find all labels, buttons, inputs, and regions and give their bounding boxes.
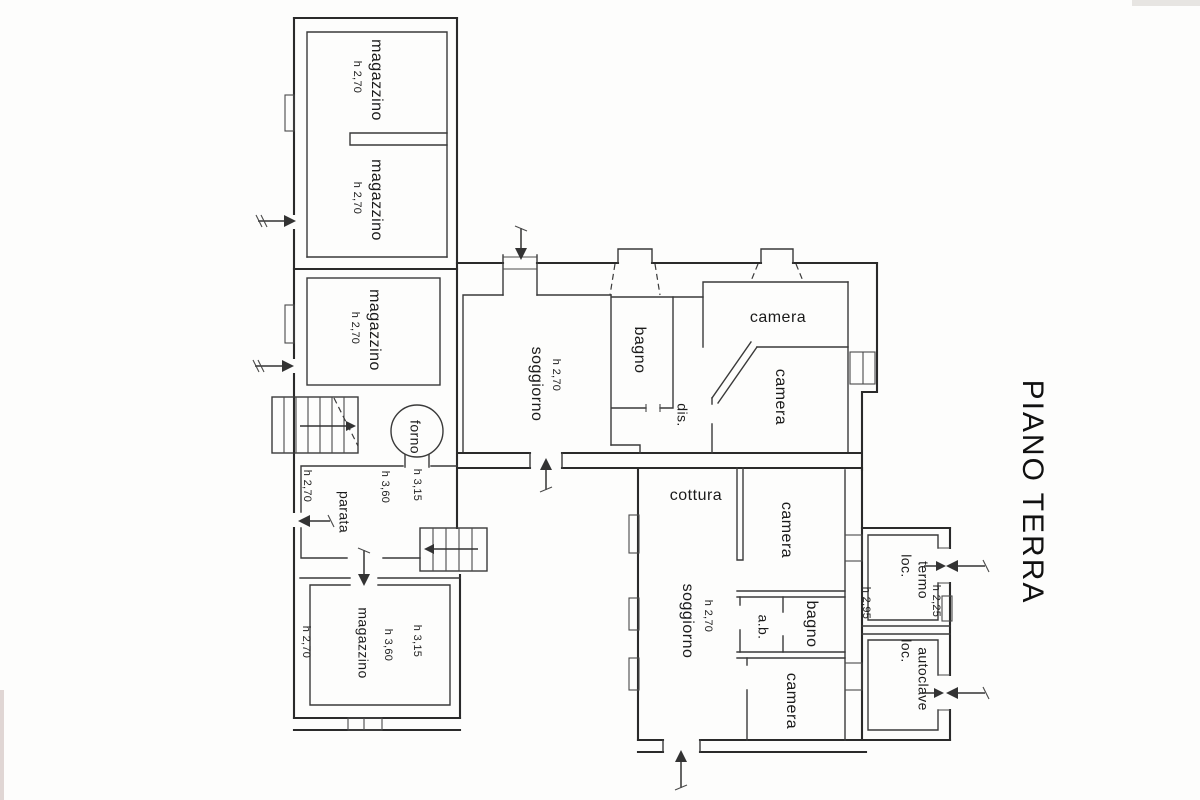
room-label-magazzino-1: magazzino (368, 39, 385, 121)
room-label-forno: forno (407, 420, 423, 454)
main-block-walls (457, 249, 877, 470)
room-label-dis: dis. (674, 403, 690, 426)
room-label-magazzino-4: magazzino (355, 607, 371, 678)
room-label-bagno-1: bagno (631, 327, 648, 374)
room-label-camera-3: camera (778, 502, 795, 558)
room-label-cottura: cottura (670, 487, 722, 504)
room-label-camera-4: camera (783, 673, 800, 729)
height-label-magazzino-4b: h 3,60 (382, 629, 394, 661)
room-label-loc-termo-2: termo (915, 561, 931, 599)
scan-artifact (0, 690, 4, 800)
height-label-magazzino-2: h 2,70 (351, 182, 363, 214)
room-label-camera-1: camera (750, 309, 806, 326)
entrance-arrow-magazzino4 (358, 548, 370, 586)
height-label-loc-termo-2: h 2,95 (860, 587, 872, 619)
entrance-arrow-main-top (515, 226, 527, 260)
entrance-arrow-parata (298, 515, 334, 527)
room-label-camera-2: camera (772, 369, 789, 425)
height-label-loc-termo: h 2,25 (930, 585, 942, 617)
entrance-arrow-lower-block (675, 750, 687, 790)
plan-title: PIANO TERRA (1016, 380, 1049, 605)
room-label-parata: parata (336, 491, 352, 533)
entrance-arrow-magazzino3 (253, 360, 294, 372)
staircase-external (272, 397, 358, 453)
staircase-internal (420, 528, 487, 571)
height-label-parata-3: h 3,15 (411, 469, 423, 501)
room-label-magazzino-3: magazzino (366, 289, 383, 371)
room-label-ab: a.b. (755, 615, 771, 640)
height-label-magazzino-3: h 2,70 (349, 312, 361, 344)
room-labels: magazzino h 2,70 magazzino h 2,70 magazz… (300, 39, 942, 729)
room-label-loc-autoclave-1: loc. (898, 639, 914, 662)
floor-plan-drawing: magazzino h 2,70 magazzino h 2,70 magazz… (0, 0, 1200, 800)
scan-artifact (1132, 0, 1200, 6)
room-label-loc-termo-1: loc. (898, 554, 914, 577)
entrance-arrow-magazzino2 (256, 215, 296, 227)
height-label-soggiorno-2: h 2,70 (702, 600, 714, 632)
height-label-parata-1: h 2,70 (301, 470, 313, 502)
left-wing-walls (285, 18, 460, 730)
entrance-arrow-loc-termo (924, 560, 989, 572)
height-label-soggiorno-1: h 2,70 (550, 359, 562, 391)
floor-plan-scan: magazzino h 2,70 magazzino h 2,70 magazz… (0, 0, 1200, 800)
room-label-bagno-2: bagno (803, 601, 820, 648)
height-label-magazzino-1: h 2,70 (351, 61, 363, 93)
room-label-soggiorno-1: soggiorno (528, 347, 545, 422)
room-label-loc-autoclave-2: autoclave (915, 647, 931, 711)
room-label-magazzino-2: magazzino (368, 159, 385, 241)
entrance-arrow-soggiorno (540, 458, 552, 492)
room-label-soggiorno-2: soggiorno (679, 584, 696, 659)
height-label-magazzino-4a: h 2,70 (300, 626, 312, 658)
height-label-parata-2: h 3,60 (379, 471, 391, 503)
height-label-magazzino-4c: h 3,15 (411, 625, 423, 657)
